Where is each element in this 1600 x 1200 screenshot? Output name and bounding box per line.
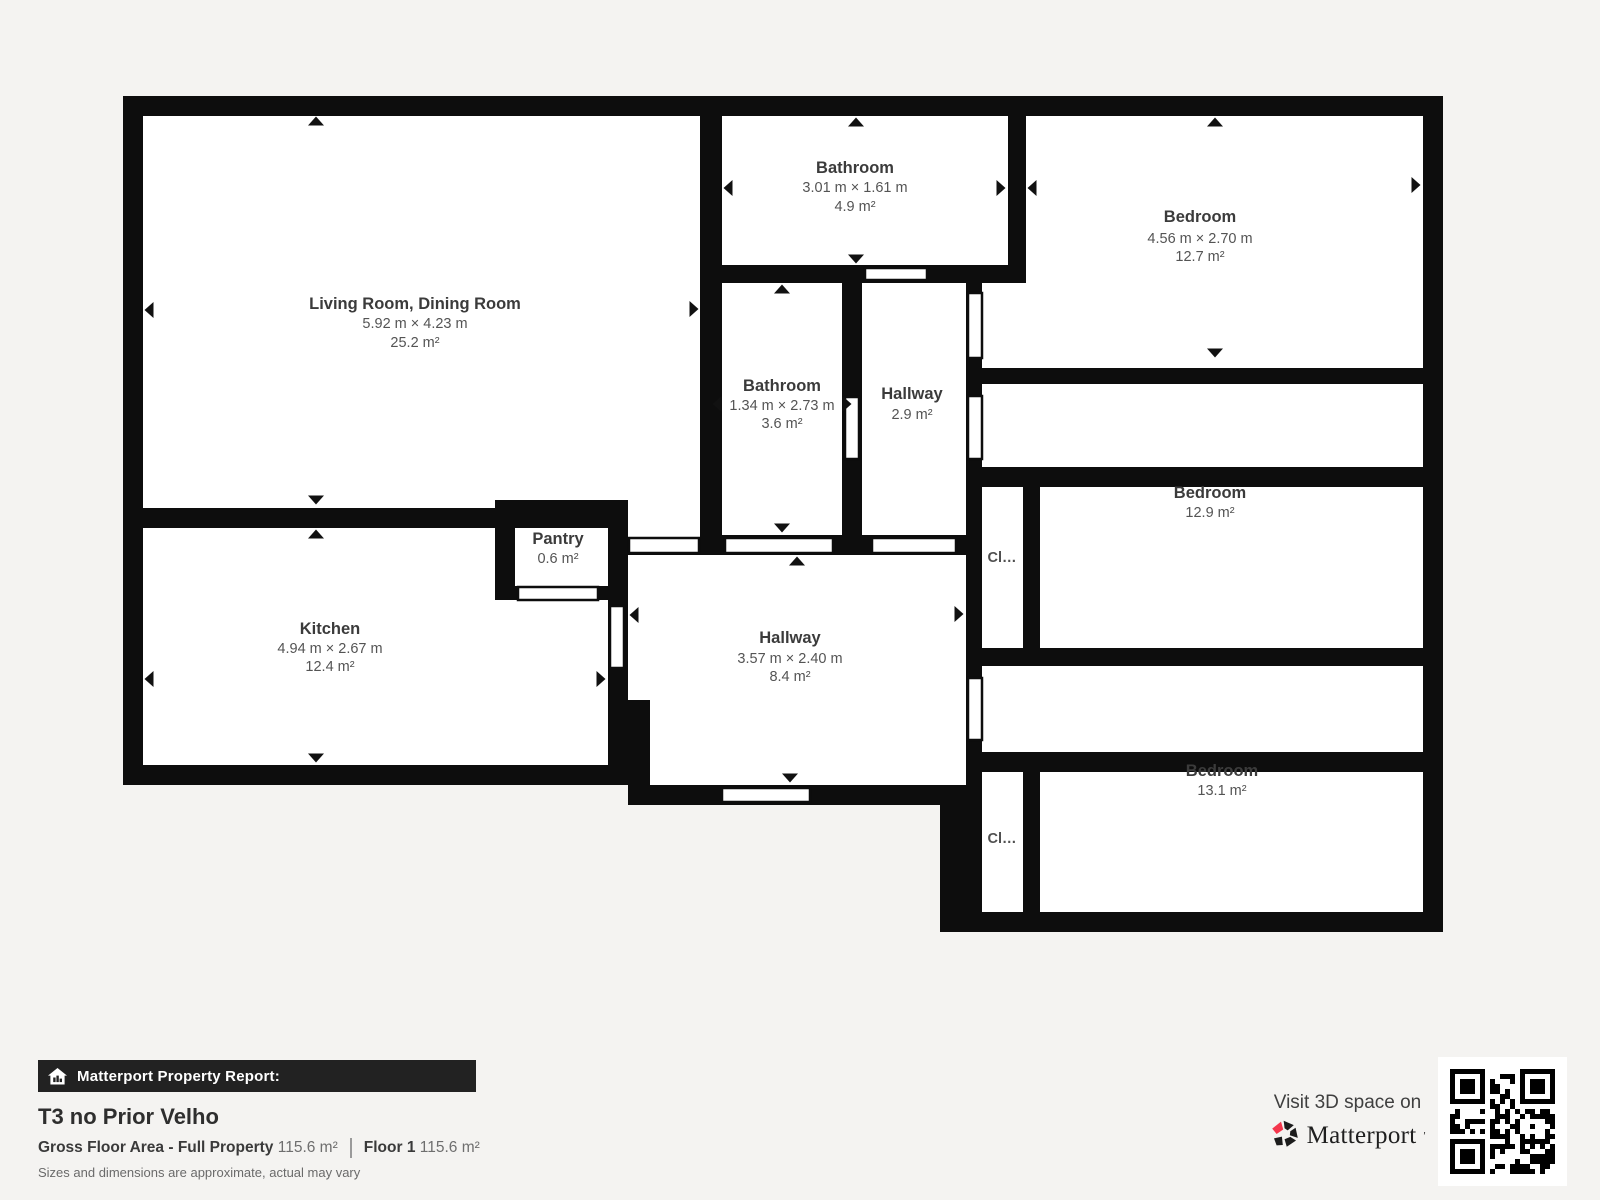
room-area: 4.9 m² xyxy=(834,199,875,215)
door-opening xyxy=(610,606,624,668)
room-dimensions: 4.94 m × 2.67 m xyxy=(277,641,382,657)
closet-label-bottom: Cl… xyxy=(988,831,1017,847)
qr-code xyxy=(1438,1057,1567,1186)
floor-value: 115.6 m² xyxy=(420,1139,480,1157)
property-title: T3 no Prior Velho xyxy=(38,1104,219,1130)
door-opening xyxy=(872,538,956,553)
room-dimensions: 3.57 m × 2.40 m xyxy=(737,651,842,667)
door-opening xyxy=(968,396,982,459)
room-area: 13.1 m² xyxy=(1197,783,1246,799)
room-area: 8.4 m² xyxy=(769,669,810,685)
room-name: Bedroom xyxy=(1174,484,1246,502)
room-name: Living Room, Dining Room xyxy=(309,295,521,313)
matterport-wordmark: Matterport xyxy=(1307,1122,1417,1150)
room-area: 2.9 m² xyxy=(891,407,932,423)
door-opening xyxy=(865,268,927,280)
room-area: 0.6 m² xyxy=(537,551,578,567)
room-name: Bedroom xyxy=(1164,208,1236,226)
room-area: 12.9 m² xyxy=(1185,505,1234,521)
house-chart-icon xyxy=(48,1068,67,1085)
room-name: Kitchen xyxy=(300,620,361,638)
room-dimensions: 3.01 m × 1.61 m xyxy=(802,180,907,196)
room-area: 12.4 m² xyxy=(305,659,354,675)
room-area: 25.2 m² xyxy=(390,335,439,351)
room-name: Hallway xyxy=(759,629,821,647)
floor-plan: Living Room, Dining Room 5.92 m × 4.23 m… xyxy=(0,0,1600,1200)
door-opening xyxy=(722,788,810,802)
gross-floor-area-value: 115.6 m² xyxy=(278,1139,338,1157)
room-area: 12.7 m² xyxy=(1175,249,1224,265)
trademark-mark: ′ xyxy=(1424,1131,1426,1142)
room-name: Bathroom xyxy=(816,159,894,177)
disclaimer-text: Sizes and dimensions are approximate, ac… xyxy=(38,1165,360,1180)
report-bar-label: Matterport Property Report: xyxy=(77,1068,280,1085)
matterport-logo-icon xyxy=(1270,1118,1300,1154)
door-opening xyxy=(518,587,598,600)
room-area: 3.6 m² xyxy=(761,416,802,432)
room-name: Pantry xyxy=(532,530,584,548)
report-header-bar: Matterport Property Report: xyxy=(38,1060,476,1092)
floor-label: Floor 1 xyxy=(364,1139,416,1157)
door-opening xyxy=(629,538,699,553)
divider xyxy=(350,1138,352,1158)
door-opening xyxy=(725,538,833,553)
floor-area-summary: Gross Floor Area - Full Property 115.6 m… xyxy=(38,1138,480,1158)
room-name: Hallway xyxy=(881,385,943,403)
room-name: Bathroom xyxy=(743,377,821,395)
matterport-brand: Matterport′ xyxy=(1240,1118,1455,1154)
closet-label-middle: Cl… xyxy=(988,550,1017,566)
door-opening xyxy=(968,678,982,740)
room-dimensions: 1.34 m × 2.73 m xyxy=(729,398,834,414)
gross-floor-area-label: Gross Floor Area - Full Property xyxy=(38,1139,273,1157)
visit-3d-space-text: Visit 3D space on xyxy=(1240,1092,1455,1114)
matterport-floorplan-report: { "rooms": { "living": {"name":"Living R… xyxy=(0,0,1600,1200)
room-name: Bedroom xyxy=(1186,762,1258,780)
room-dimensions: 5.92 m × 4.23 m xyxy=(362,316,467,332)
door-opening xyxy=(968,293,982,358)
room-dimensions: 4.56 m × 2.70 m xyxy=(1147,231,1252,247)
pantry-block-layer xyxy=(495,500,628,600)
